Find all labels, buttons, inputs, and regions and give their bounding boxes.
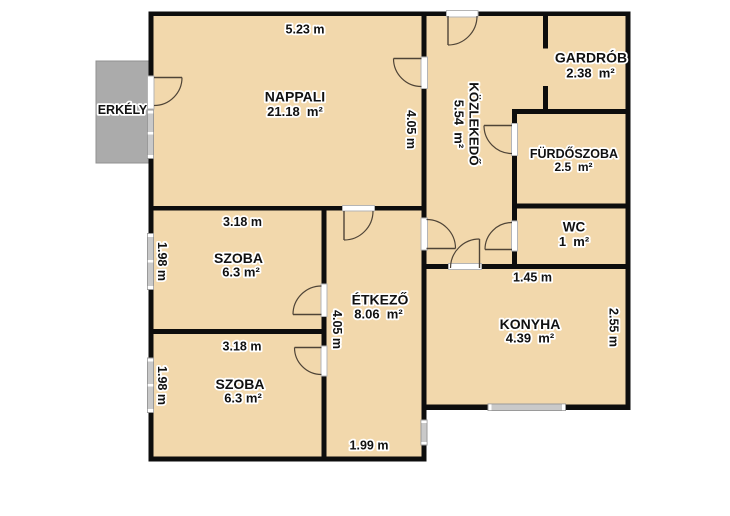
svg-text:21.18 m²: 21.18 m² xyxy=(267,104,323,119)
svg-text:4.05 m: 4.05 m xyxy=(330,310,344,349)
svg-text:GARDRÓB: GARDRÓB xyxy=(555,49,627,66)
svg-text:1 m²: 1 m² xyxy=(559,234,590,249)
svg-text:5.54 m²: 5.54 m² xyxy=(452,100,467,149)
svg-text:KÖZLEKEDŐ: KÖZLEKEDŐ xyxy=(467,82,482,165)
svg-text:1.98 m: 1.98 m xyxy=(155,242,169,281)
svg-text:2.55 m: 2.55 m xyxy=(607,308,621,347)
svg-text:1.98 m: 1.98 m xyxy=(155,366,169,405)
svg-text:NAPPALI: NAPPALI xyxy=(265,89,325,105)
svg-text:5.23 m: 5.23 m xyxy=(286,23,325,37)
svg-text:FÜRDŐSZOBA: FÜRDŐSZOBA xyxy=(530,146,618,161)
svg-text:ÉTKEZŐ: ÉTKEZŐ xyxy=(352,291,409,308)
svg-text:WC: WC xyxy=(563,220,586,235)
svg-text:2.38 m²: 2.38 m² xyxy=(566,66,615,81)
svg-text:3.18 m: 3.18 m xyxy=(223,340,262,354)
svg-text:ERKÉLY: ERKÉLY xyxy=(98,102,148,117)
svg-text:6.3 m²: 6.3 m² xyxy=(224,391,262,406)
svg-text:3.18 m: 3.18 m xyxy=(223,215,262,229)
svg-text:4.39 m²: 4.39 m² xyxy=(506,331,555,346)
svg-text:8.06 m²: 8.06 m² xyxy=(354,307,403,322)
svg-text:1.99 m: 1.99 m xyxy=(350,439,389,453)
svg-text:6.3 m²: 6.3 m² xyxy=(222,265,260,280)
svg-text:4.05 m: 4.05 m xyxy=(404,110,418,149)
svg-text:2.5 m²: 2.5 m² xyxy=(554,160,592,174)
svg-text:1.45 m: 1.45 m xyxy=(513,271,552,285)
